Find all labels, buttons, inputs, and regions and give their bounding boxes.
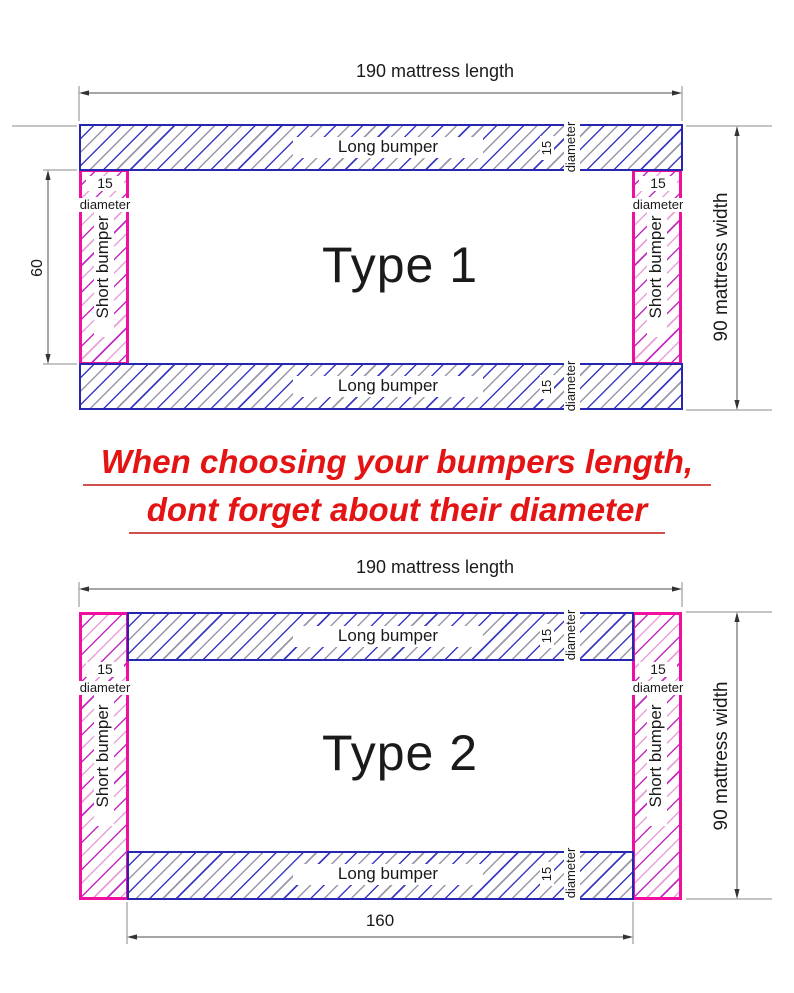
- type1-right-diameter-value: 15: [639, 176, 677, 191]
- warning-line1: When choosing your bumpers length,: [83, 443, 711, 486]
- warning-line2-row: dont forget about their diameter: [0, 491, 794, 534]
- bumper-diagram-page: 190 mattress length Long bumper Long bum…: [0, 0, 794, 993]
- type1-short-bumper-right-label: Short bumper: [647, 197, 667, 337]
- type2-top-diameter-value: 15: [540, 624, 554, 648]
- type2-left-diameter-word: diameter: [74, 681, 136, 695]
- type1-short-bumper-left-label: Short bumper: [94, 197, 114, 337]
- type1-left-diameter-value: 15: [86, 176, 124, 191]
- type1-bottom-diameter-word: diameter: [564, 354, 580, 418]
- type1-short-bumper-length-dim: 60: [29, 248, 47, 288]
- type2-right-diameter-value: 15: [639, 662, 677, 677]
- type1-right-diameter-word: diameter: [627, 198, 689, 212]
- type1-top-diameter-word: diameter: [564, 115, 580, 179]
- warning-line2: dont forget about their diameter: [129, 491, 666, 534]
- type2-left-diameter-value: 15: [86, 662, 124, 677]
- type2-mattress-length-dim: 190 mattress length: [320, 558, 550, 578]
- type2-bottom-diameter-word: diameter: [564, 841, 580, 905]
- type1-left-diameter-word: diameter: [74, 198, 136, 212]
- type1-long-bumper-top-label: Long bumper: [293, 137, 483, 158]
- type2-long-bumper-top-label: Long bumper: [293, 626, 483, 647]
- type2-long-bumper-bottom-label: Long bumper: [293, 864, 483, 885]
- warning-text: When choosing your bumpers length, dont …: [0, 443, 794, 539]
- type1-long-bumper-bottom-label: Long bumper: [293, 376, 483, 397]
- type2-short-bumper-right-label: Short bumper: [647, 686, 667, 826]
- type2-title: Type 2: [290, 726, 510, 781]
- type2-top-diameter-word: diameter: [564, 603, 580, 667]
- type1-top-diameter-value: 15: [540, 136, 554, 160]
- warning-line1-row: When choosing your bumpers length,: [0, 443, 794, 486]
- type1-title: Type 1: [290, 238, 510, 293]
- type2-long-bumper-length-dim: 160: [330, 912, 430, 931]
- type1-mattress-length-dim: 190 mattress length: [320, 62, 550, 82]
- type2-mattress-width-dim: 90 mattress width: [712, 671, 734, 841]
- type1-mattress-width-dim: 90 mattress width: [712, 182, 734, 352]
- type2-short-bumper-left-label: Short bumper: [94, 686, 114, 826]
- type2-bottom-diameter-value: 15: [540, 862, 554, 886]
- type2-right-diameter-word: diameter: [627, 681, 689, 695]
- type1-bottom-diameter-value: 15: [540, 375, 554, 399]
